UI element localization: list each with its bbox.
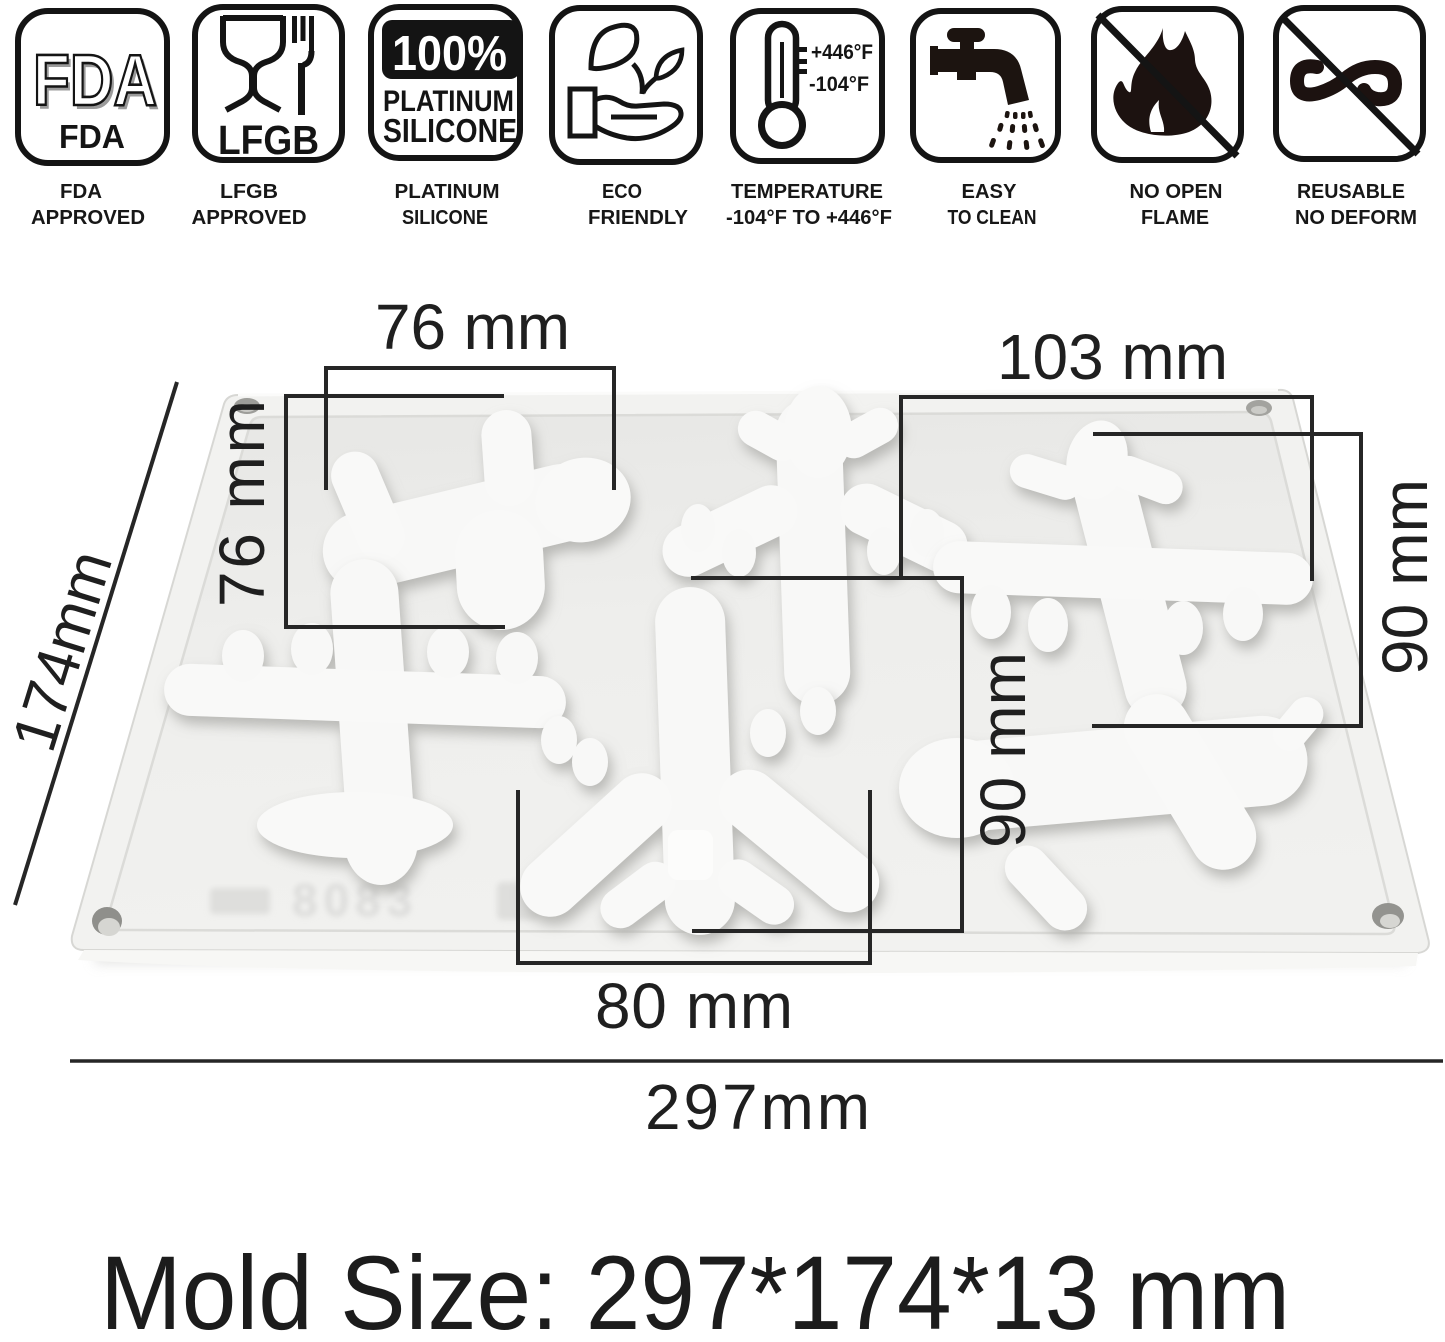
svg-text:PLATINUM: PLATINUM — [395, 181, 500, 203]
svg-text:297mm: 297mm — [645, 1071, 870, 1143]
svg-text:TEMPERATURE: TEMPERATURE — [731, 181, 883, 203]
svg-text:76 mm: 76 mm — [375, 291, 570, 363]
svg-text:174mm: 174mm — [0, 543, 126, 759]
svg-text:FDA: FDA — [33, 41, 157, 121]
svg-text:80 mm: 80 mm — [595, 970, 793, 1042]
svg-text:FDA: FDA — [60, 181, 102, 203]
svg-text:100%: 100% — [392, 27, 507, 81]
svg-text:TO CLEAN: TO CLEAN — [948, 207, 1037, 229]
svg-text:FRIENDLY: FRIENDLY — [588, 207, 689, 229]
svg-text:-104°F: -104°F — [809, 73, 869, 96]
svg-text:76 mm: 76 mm — [206, 400, 278, 607]
svg-text:+446°F: +446°F — [811, 41, 873, 64]
svg-text:LFGB: LFGB — [220, 181, 278, 203]
svg-text:90 mm: 90 mm — [967, 652, 1039, 848]
svg-text:FDA: FDA — [59, 118, 125, 155]
svg-text:EASY: EASY — [962, 181, 1018, 203]
svg-text:103 mm: 103 mm — [997, 321, 1228, 393]
svg-text:SILICONE: SILICONE — [383, 112, 517, 149]
svg-text:ECO: ECO — [602, 181, 642, 203]
svg-text:-104°F TO +446°F: -104°F TO +446°F — [726, 207, 892, 229]
svg-text:REUSABLE: REUSABLE — [1297, 181, 1405, 203]
svg-text:APPROVED: APPROVED — [192, 207, 307, 229]
svg-text:FLAME: FLAME — [1141, 207, 1209, 229]
svg-text:SILICONE: SILICONE — [402, 207, 488, 229]
svg-text:APPROVED: APPROVED — [31, 207, 145, 229]
svg-text:LFGB: LFGB — [218, 117, 319, 163]
svg-text:NO DEFORM: NO DEFORM — [1295, 207, 1417, 229]
svg-text:90 mm: 90 mm — [1369, 479, 1441, 675]
svg-text:Mold Size: 297*174*13 mm: Mold Size: 297*174*13 mm — [100, 1235, 1290, 1342]
svg-text:8083: 8083 — [292, 874, 418, 926]
svg-text:NO OPEN: NO OPEN — [1130, 181, 1223, 203]
